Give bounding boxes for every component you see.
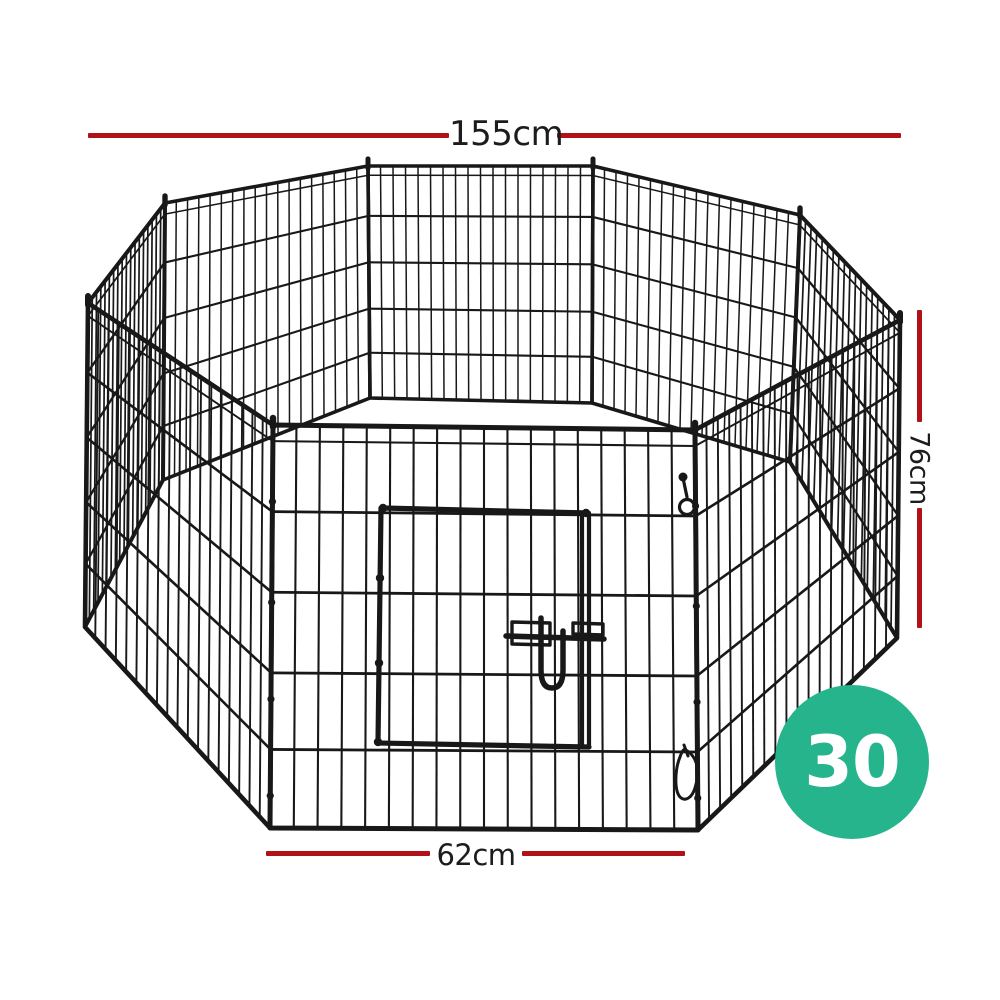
top-dimension-line-right-segment (557, 133, 901, 138)
product-diagram-canvas: 155cm 76cm 62cm 30 (0, 0, 1000, 1000)
dimension-label-bottom: 62cm (430, 841, 522, 870)
right-dimension-line-upper-segment (917, 310, 922, 422)
dimension-label-top: 155cm (449, 117, 557, 151)
top-dimension-line-left-segment (88, 133, 449, 138)
right-dimension-line-lower-segment (917, 508, 922, 628)
count-badge-value: 30 (804, 727, 899, 797)
bottom-dimension-line-left-segment (266, 851, 430, 856)
dimension-label-right: 76cm (906, 431, 933, 505)
count-badge: 30 (775, 685, 929, 839)
bottom-dimension-line-right-segment (522, 851, 685, 856)
